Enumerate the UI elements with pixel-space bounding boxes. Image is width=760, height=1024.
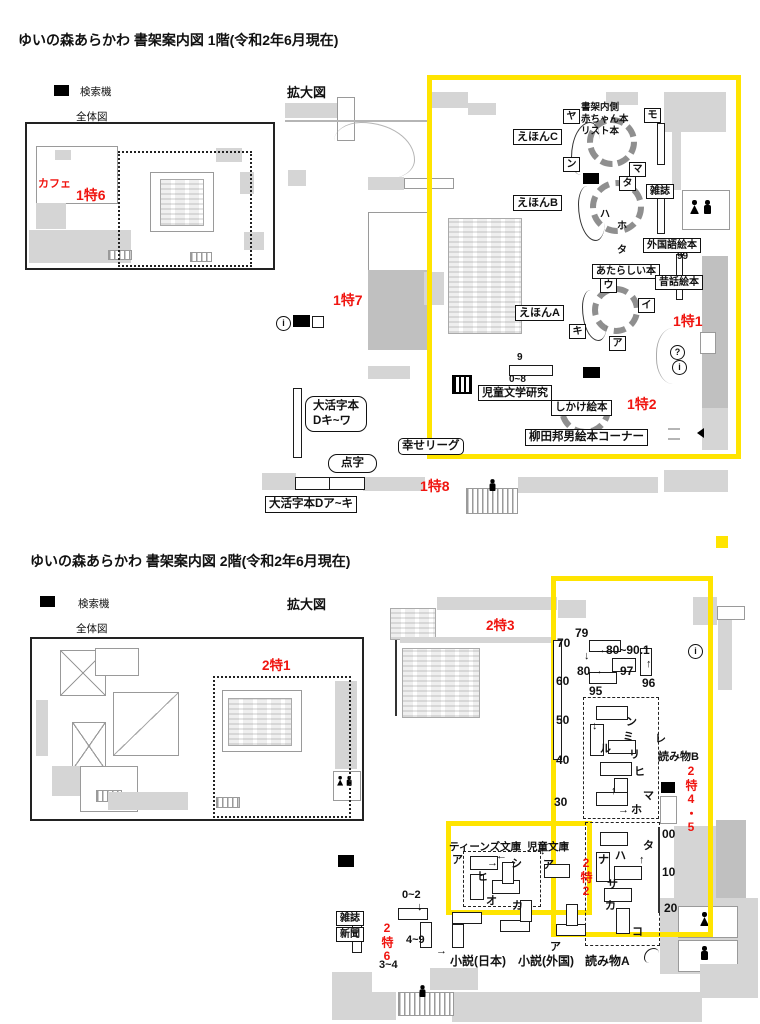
braille-label: 点字 (328, 454, 377, 473)
magazines-label: 雑誌 (336, 911, 364, 926)
reading-a-label: 読み物A (585, 952, 630, 969)
wall-line (395, 640, 397, 716)
shelf-unit (398, 908, 428, 920)
kana-mark: ミ (623, 728, 634, 744)
kana-mark: ル (600, 740, 611, 756)
popup-books-label: しかけ絵本 (551, 400, 612, 416)
kana-mark: ナ (598, 851, 609, 867)
kana-box: イ (638, 298, 655, 313)
children-literature-label: 児童文学研究 (478, 385, 552, 401)
kana-box: タ (619, 176, 636, 191)
newspaper-label: 新聞 (336, 927, 364, 942)
shelf-unit (566, 904, 578, 926)
wall-block (36, 203, 66, 229)
kana-mark: ア (543, 856, 554, 872)
counter (717, 606, 745, 620)
shelf-unit (452, 912, 482, 924)
wall-block (262, 473, 296, 490)
kana-box: キ (569, 324, 586, 339)
person-on-stairs-icon (419, 985, 427, 998)
kana-mark: ハ (600, 205, 610, 220)
children-bunko-label: 児童文庫 (527, 839, 569, 854)
shelf-unit (614, 866, 642, 880)
wall-block (285, 103, 343, 118)
wall-block (430, 968, 478, 990)
zone-2toku6: 2特6 (381, 921, 393, 964)
shelf-number: 60 (556, 674, 569, 688)
shelf-unit (312, 316, 324, 328)
hall-room (113, 692, 179, 756)
arrow-down-icon: ↓ (417, 901, 423, 913)
search-machine-legend-icon (54, 85, 69, 96)
zone-1toku7: 1特7 (333, 290, 363, 310)
arrow-down-icon: ↓ (584, 650, 590, 662)
picture-books-c-label: えほんC (513, 129, 562, 145)
shelf-unit (657, 123, 665, 165)
zone-1toku8: 1特8 (420, 476, 450, 496)
happy-league-label: 幸せリーグ (398, 438, 464, 455)
shelf-number: 80 (577, 664, 590, 678)
kana-mark: オ (486, 892, 497, 908)
door-swing-arc (334, 122, 415, 179)
kana-mark: サ (607, 876, 618, 892)
kana-mark: ホ (617, 217, 627, 232)
teens-bunko-label: ティーンズ文庫 (449, 839, 521, 854)
info-circle: i (672, 360, 687, 375)
wall-block (108, 792, 188, 810)
kana-box: ウ (600, 278, 617, 293)
shelf-number-0-8: 0~8 (509, 374, 526, 385)
kana-mark: シ (511, 855, 522, 871)
door-arc (644, 948, 659, 963)
large-print-aki-label: 大活字本Dア~キ (265, 496, 357, 513)
room (368, 212, 430, 272)
room (95, 648, 139, 676)
floor2-overview-label: 全体図 (76, 621, 108, 636)
shelf-unit (295, 477, 331, 490)
wall-block (55, 150, 71, 160)
zone-1toku2: 1特2 (627, 394, 657, 414)
shelf-rows (390, 608, 436, 640)
arrow-up-icon: ↑ (646, 658, 652, 670)
stairs-icon (466, 488, 518, 514)
shelf-unit (596, 706, 628, 720)
enlarged-area-outline (213, 676, 351, 818)
reading-b-label: 読み物B (658, 748, 699, 764)
wall-block (288, 170, 306, 186)
wall-block (36, 700, 48, 756)
search-machine-icon (583, 367, 600, 378)
kana-box: ヤ (563, 109, 580, 124)
kana-mark: カ (512, 897, 523, 913)
arrow-right-icon: → (618, 804, 629, 816)
enlarged-area-outline (118, 151, 252, 267)
cafe-label: カフェ (38, 175, 71, 191)
number-bracket (658, 827, 660, 913)
zone-2toku3: 2特3 (486, 614, 515, 634)
wall-block (664, 470, 728, 492)
kana-box: ン (563, 157, 580, 172)
search-machine-legend-icon (40, 596, 55, 607)
kana-mark: ヒ (634, 763, 645, 779)
kana-mark: タ (617, 241, 627, 256)
wall-block (52, 766, 80, 796)
kana-mark: ホ (631, 801, 642, 817)
shelf-number: 10 (662, 865, 675, 879)
counter (660, 796, 677, 824)
elevator-shaft (72, 722, 106, 770)
kana-mark: ン (626, 713, 637, 729)
wall-block (558, 600, 586, 618)
picture-books-a-label: えほんA (515, 305, 564, 321)
shelf-unit (553, 640, 562, 760)
wall-block (368, 270, 428, 350)
kana-mark: タ (643, 837, 654, 853)
picture-books-b-label: えほんB (513, 195, 562, 211)
reference-circle: ? (670, 345, 685, 360)
shelf-unit (329, 477, 365, 490)
zone-2toku4-5: 2特4・5 (685, 764, 697, 835)
person-on-stairs-icon (489, 479, 497, 492)
arrow-up-icon: ↑ (639, 854, 645, 866)
shelf-unit (657, 198, 665, 234)
new-books-label: あたらしい本 (592, 264, 660, 279)
shelf-number: 80~90.1 (606, 643, 650, 657)
shelf-number: 40 (556, 753, 569, 767)
novels-japan-label: 小説(日本) (450, 952, 506, 969)
floor1-legend-search: 検索機 (80, 84, 112, 99)
kana-box: マ (629, 162, 646, 177)
shelf-number: 00 (662, 827, 675, 841)
shelf-unit (452, 924, 464, 948)
large-print-kiwa-label: 大活字本 Dキ~ワ (305, 396, 367, 432)
kana-mark: コ (632, 923, 643, 939)
yanagida-corner-label: 柳田邦男絵本コーナー (525, 429, 648, 446)
search-machine-icon (338, 855, 354, 867)
shelf-number: 4~9 (406, 934, 425, 946)
shelf-number-9: 9 (517, 352, 523, 363)
kana-box: ア (609, 336, 626, 351)
shelf-number: 97 (620, 664, 633, 678)
shelf-unit (616, 908, 630, 934)
man-icon (700, 946, 709, 961)
shelf-number: 70 (557, 636, 570, 650)
yellow-marker (716, 536, 728, 548)
floor2-legend-search: 検索機 (78, 596, 110, 611)
wall-block (332, 972, 372, 992)
shelf-unit (293, 388, 302, 458)
kana-mark: マ (643, 787, 654, 803)
folk-tales-label: 昔話絵本 (655, 275, 703, 290)
shelf-number-99: 99 (677, 251, 688, 262)
magazines-label: 雑誌 (646, 184, 674, 199)
floor1-enlarged-label: 拡大図 (287, 82, 326, 101)
foreign-picture-books-label: 外国語絵本 (643, 238, 701, 253)
arrow-right-icon: → (436, 945, 447, 957)
wall-block (368, 366, 410, 379)
floor2-enlarged-label: 拡大図 (287, 594, 326, 613)
wall-block (363, 477, 425, 491)
kana-mark: カ (605, 897, 616, 913)
wall-block (452, 992, 702, 1022)
kana-mark: ヒ (477, 868, 488, 884)
shelf-number: 96 (642, 676, 655, 690)
wall-block (700, 964, 758, 998)
inner-shelf-note: 書架内側 赤ちゃん本 リスト本 (581, 102, 629, 138)
shelf-number: 30 (554, 795, 567, 809)
info-circle: i (688, 644, 703, 659)
shelf-number: 95 (589, 684, 602, 698)
zone-1toku1: 1特1 (673, 311, 703, 331)
search-machine-icon (293, 315, 310, 327)
search-machine-icon (661, 782, 675, 793)
kana-mark: リ (629, 746, 640, 762)
kana-mark: ハ (615, 847, 626, 863)
wall-block (437, 597, 557, 610)
shelf-number: 20 (664, 901, 677, 915)
kana-mark: レ (655, 730, 666, 746)
kana-box: モ (644, 108, 661, 123)
shelf-number: 50 (556, 713, 569, 727)
arrow-right-icon: → (592, 665, 603, 677)
floor2-title: ゆいの森あらかわ 書架案内図 2階(令和2年6月現在) (30, 551, 350, 571)
wall-block (518, 477, 658, 493)
zone-2toku1: 2特1 (262, 654, 291, 674)
shelf-number: 0~2 (402, 889, 421, 901)
wall-block (718, 620, 732, 690)
zone-2toku2: 2特2 (580, 856, 592, 899)
shelf-number: 79 (575, 626, 588, 640)
arrow-up-icon: ↑ (611, 785, 617, 797)
info-circle: i (276, 316, 291, 331)
floor1-title: ゆいの森あらかわ 書架案内図 1階(令和2年6月現在) (18, 30, 338, 50)
arrow-down-icon: ↓ (592, 720, 598, 732)
shelf-unit (600, 832, 628, 846)
arrow-right-icon: → (595, 644, 606, 656)
shelf-unit (600, 762, 632, 776)
library-shelf-guide-page: ゆいの森あらかわ 書架案内図 1階(令和2年6月現在) 検索機 全体図 拡大図 … (0, 0, 760, 1024)
elevator-icon (452, 375, 472, 394)
zone-1toku6: 1特6 (76, 185, 106, 205)
search-machine-icon (583, 173, 599, 184)
novels-foreign-label: 小説(外国) (518, 952, 574, 969)
wall-block (368, 177, 404, 190)
bookshelf-rows (402, 648, 480, 718)
wall-block (332, 992, 396, 1020)
wall-block (400, 637, 554, 643)
